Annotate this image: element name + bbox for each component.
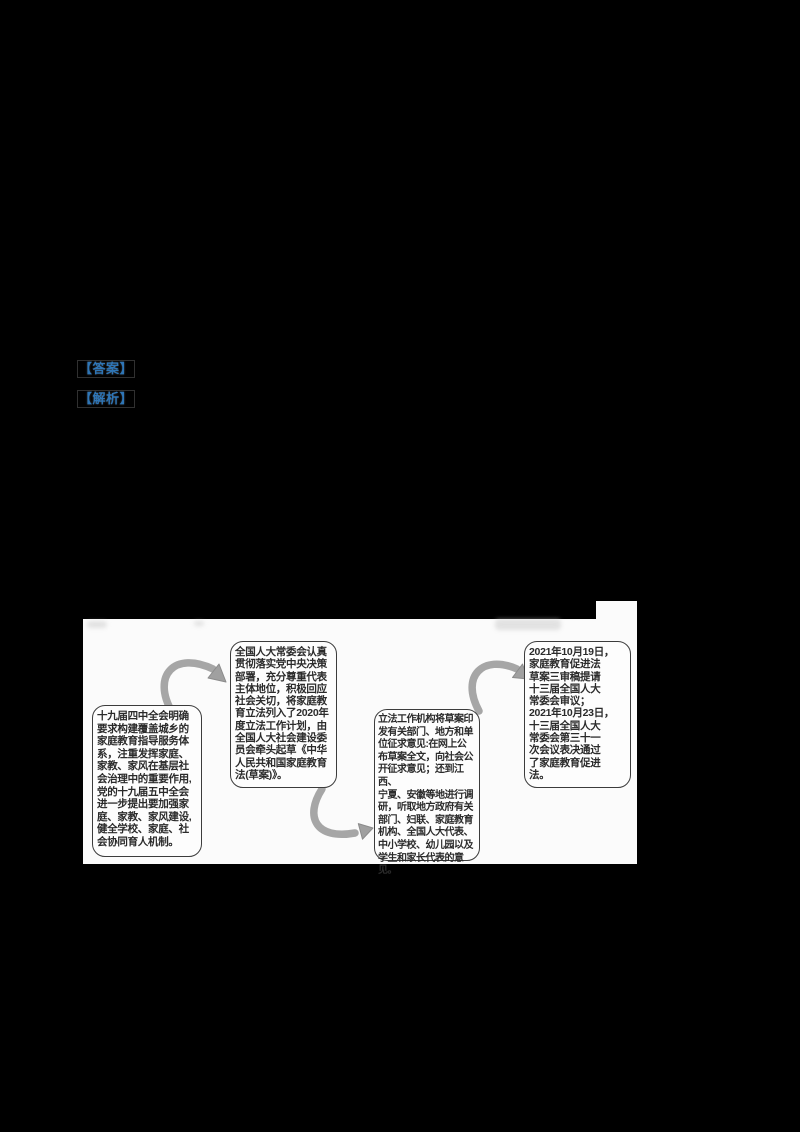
flow-step-1: 十九届四中全会明确 要求构建覆盖城乡的 家庭教育指导服务体 系，注重发挥家庭、 … — [92, 705, 202, 857]
flowchart-figure: 十九届四中全会明确 要求构建覆盖城乡的 家庭教育指导服务体 系，注重发挥家庭、 … — [83, 619, 637, 864]
scan-smudge — [495, 619, 561, 630]
scan-smudge — [194, 621, 204, 626]
analysis-label: 【解析】 — [78, 391, 134, 407]
flow-step-3: 立法工作机构将草案印 发有关部门、地方和单 位征求意见:在网上公 布草案全文，向… — [374, 709, 480, 861]
flow-arrow-3 — [472, 664, 528, 711]
answer-label: 【答案】 — [78, 361, 134, 377]
flow-step-4: 2021年10月19日， 家庭教育促进法 草案三审稿提请 十三届全国人大 常委会… — [524, 641, 631, 788]
flow-arrow-2 — [314, 789, 373, 839]
scan-smudge — [87, 621, 107, 628]
figure-panel-tab — [596, 601, 637, 620]
flow-step-2: 全国人大常委会认真 贯彻落实党中央决策 部署，充分尊重代表 主体地位，积极回应 … — [230, 641, 337, 788]
